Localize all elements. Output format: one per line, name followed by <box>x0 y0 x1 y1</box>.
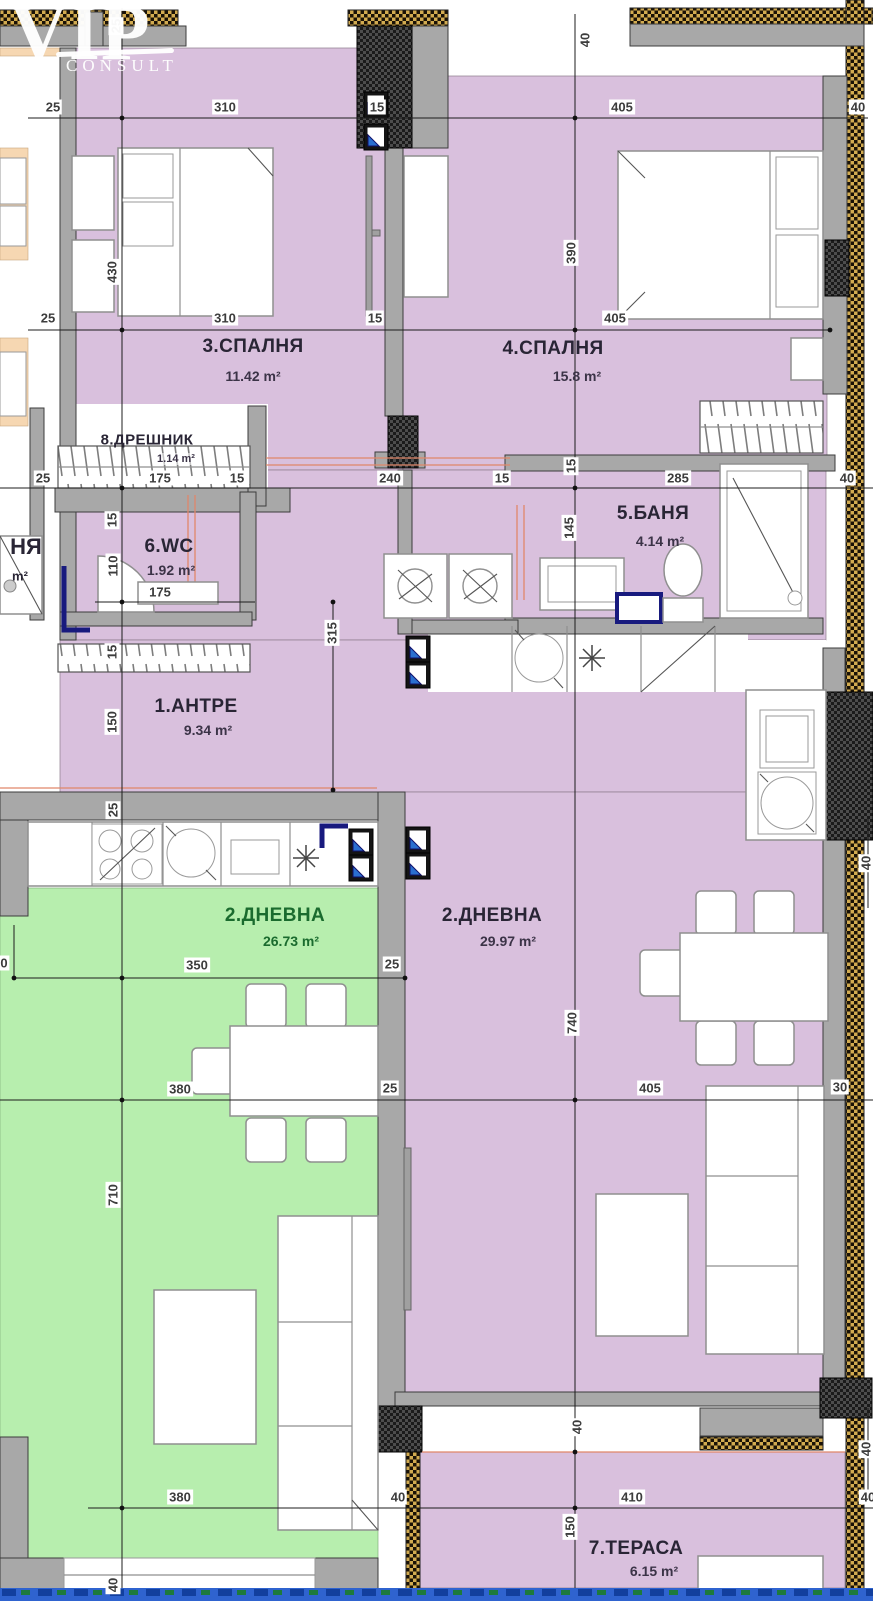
shaft <box>823 692 873 840</box>
insulated-wall <box>406 1437 420 1593</box>
chair <box>640 950 684 996</box>
dishwasher-icon <box>231 840 279 874</box>
chair <box>246 1118 286 1162</box>
coffee-table <box>154 1290 256 1444</box>
terrace-railing-band <box>0 1588 873 1601</box>
sofa-green <box>278 1216 378 1530</box>
left-wall <box>60 48 76 640</box>
chair <box>246 984 286 1028</box>
kitchen-pink-floor <box>428 626 748 692</box>
insulated-wall <box>630 8 873 24</box>
kitchen-green <box>28 822 378 886</box>
chair <box>306 984 346 1028</box>
nightstand <box>72 156 114 230</box>
pillow <box>776 157 818 229</box>
pillow <box>776 235 818 307</box>
shaft <box>820 1378 872 1418</box>
tv-icon <box>404 1148 411 1310</box>
green-kitchen-wall <box>0 792 378 820</box>
radiator-rack <box>700 401 823 453</box>
washing-machine <box>449 554 512 618</box>
coffee-table <box>596 1194 688 1336</box>
chair <box>754 1021 794 1065</box>
chair <box>306 1118 346 1162</box>
dining-table <box>680 933 828 1021</box>
floor-plan-drawing <box>0 0 873 1601</box>
wc-sink <box>138 582 218 604</box>
wardrobe <box>404 156 448 297</box>
insulated-wall <box>700 1437 823 1450</box>
sofa-pink <box>706 1086 824 1354</box>
closet-rail <box>58 446 250 488</box>
coat-rack <box>58 644 250 672</box>
chair <box>696 1021 736 1065</box>
shaft <box>825 240 849 296</box>
pillow <box>123 202 173 246</box>
chair <box>696 891 736 935</box>
chair <box>754 891 794 935</box>
unit-separator-wall <box>378 792 405 1446</box>
shower-tray <box>617 594 661 622</box>
terrace-wall <box>395 1392 835 1406</box>
shaft <box>378 1406 422 1452</box>
pillow <box>123 154 173 198</box>
toilet <box>663 544 703 622</box>
insulated-wall <box>348 10 448 26</box>
kitchen-column <box>746 690 826 840</box>
washing-machine <box>384 554 447 618</box>
nightstand <box>72 240 114 312</box>
tv-icon <box>366 156 372 316</box>
floor-plan: 2531015405402540430390253101540525175152… <box>0 0 873 1601</box>
right-wall <box>823 76 847 394</box>
shower-cabin <box>720 464 808 618</box>
bathroom-sink <box>540 558 624 610</box>
neighbor-fixtures <box>0 158 42 614</box>
stove-icon <box>92 824 162 884</box>
nightstand <box>791 338 823 380</box>
dining-table <box>230 1026 378 1116</box>
chair <box>192 1048 234 1094</box>
terrace-bench <box>698 1556 823 1590</box>
shaft <box>388 416 418 468</box>
round-sink-icon <box>761 777 813 829</box>
